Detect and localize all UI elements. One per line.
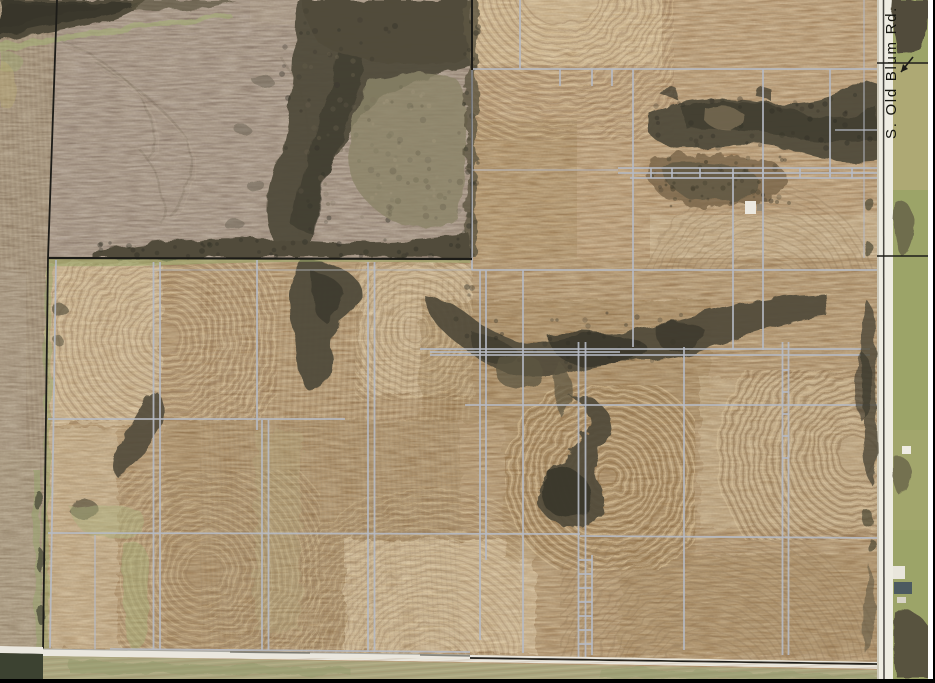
svg-text:S. Old Blum Rd.: S. Old Blum Rd. [883, 6, 900, 139]
